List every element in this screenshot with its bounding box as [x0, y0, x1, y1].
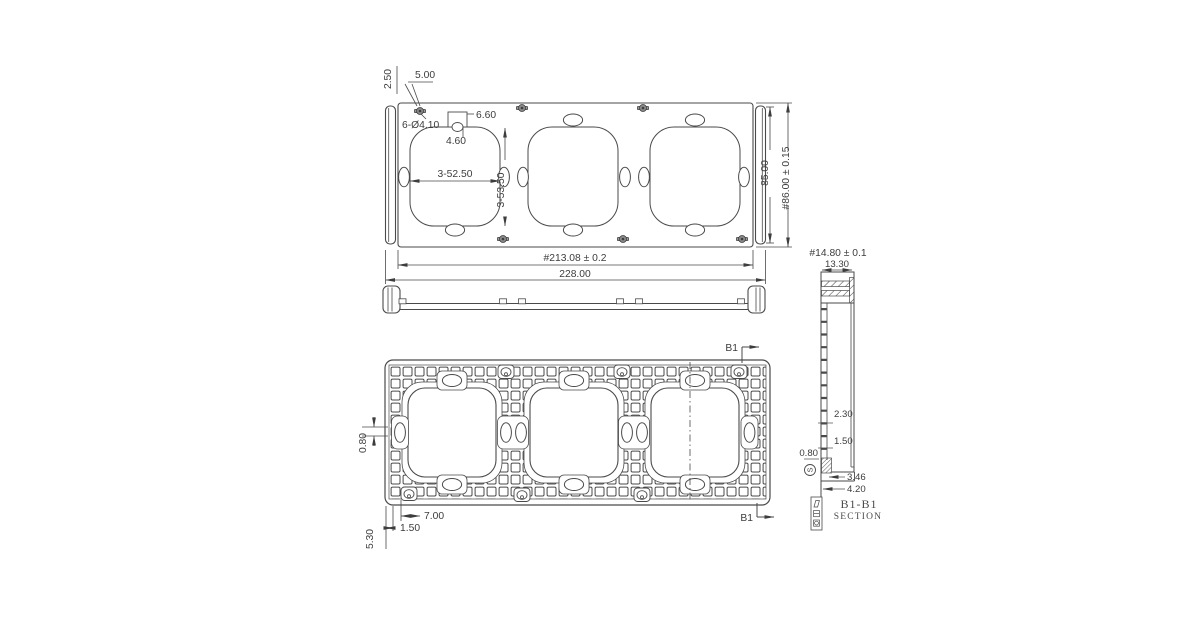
- edge-left-cap: [383, 286, 400, 313]
- dim-opening-height: 3-53.50: [496, 172, 507, 207]
- section-view: #14.80 ± 0.1 13.30 2.30 1.50 0.80 3.46 4…: [799, 248, 882, 530]
- dim-cap-width: 13.30: [825, 259, 849, 270]
- dim-cap-height: 85.00: [760, 160, 771, 186]
- dim-base-a: 3.46: [847, 472, 866, 483]
- datum-letter: S: [806, 467, 815, 472]
- screw-boss: [401, 487, 417, 501]
- dim-overall-depth: #14.80 ± 0.1: [809, 248, 866, 259]
- screw-boss: [634, 488, 650, 502]
- cut-rib-hatch: [822, 458, 832, 473]
- edge-tab: [500, 299, 507, 304]
- back-opening-1: [408, 388, 496, 477]
- dim-overall-width: 228.00: [559, 269, 591, 280]
- drawing-sheet: 6.60 4.60 2.50 5.00 6-Ø4.10 3-52.50 3-53…: [0, 0, 1200, 630]
- edge-tab: [738, 299, 745, 304]
- oval-hole: [685, 479, 704, 491]
- oval-hole: [563, 114, 582, 126]
- screw-boss: [498, 365, 514, 379]
- oval-hole: [445, 224, 464, 236]
- dim-edge-offset: 1.50: [400, 523, 420, 534]
- oval-hole: [442, 375, 461, 387]
- back-opening-2: [530, 388, 618, 477]
- edge-tab: [617, 299, 624, 304]
- top-view: 6.60 4.60 2.50 5.00 6-Ø4.10 3-52.50 3-53…: [383, 66, 792, 284]
- edge-right-cap: [748, 286, 765, 313]
- oval-hole: [395, 423, 406, 443]
- dim-opening-width: 3-52.50: [438, 169, 473, 180]
- section-label-bottom: B1: [740, 513, 753, 524]
- dim-rib-width: 0.80: [358, 433, 369, 453]
- left-end-cap: [386, 106, 396, 244]
- dim-corner-offset: 5.30: [365, 529, 376, 549]
- edge-tab: [399, 299, 406, 304]
- dim-wall-b: 1.50: [834, 436, 853, 447]
- dim-corner-offset-h: 5.00: [415, 70, 435, 81]
- oval-hole: [564, 375, 583, 387]
- section-subtitle: SECTION: [834, 512, 883, 522]
- dim-base-b: 4.20: [847, 484, 866, 495]
- oval-hole: [442, 479, 461, 491]
- dim-mount-holes: 6-Ø4.10: [402, 120, 439, 131]
- oval-hole: [518, 167, 529, 187]
- back-view: B1 B1 0.80 7.00 1.50 5.30: [358, 343, 774, 549]
- screw-boss: [731, 365, 747, 379]
- oval-hole: [739, 167, 750, 187]
- dim-corner-offset-v: 2.50: [383, 69, 394, 89]
- oval-hole: [622, 423, 633, 443]
- oval-hole: [620, 167, 631, 187]
- edge-view: [383, 286, 765, 313]
- oval-hole: [685, 375, 704, 387]
- section-label-top: B1: [725, 343, 738, 354]
- edge-tab: [636, 299, 643, 304]
- dim-overall-height: #86.00 ± 0.15: [781, 146, 792, 209]
- dim-tab-width: 6.60: [476, 110, 496, 121]
- dim-wall-a: 2.30: [834, 409, 853, 420]
- section-cap-block: [821, 272, 854, 303]
- oval-hole: [639, 167, 650, 187]
- opening-3: [650, 127, 740, 226]
- opening-2: [528, 127, 618, 226]
- dim-hole-span: #213.08 ± 0.2: [544, 253, 607, 264]
- screw-boss: [614, 365, 630, 379]
- edge-tab: [519, 299, 526, 304]
- oval-hole: [399, 167, 410, 187]
- oval-hole: [563, 224, 582, 236]
- oval-hole: [637, 423, 648, 443]
- dim-boss-offset: 7.00: [424, 511, 444, 522]
- oval-hole: [564, 479, 583, 491]
- section-title: B1-B1: [840, 497, 877, 511]
- dim-tab-depth: 4.60: [446, 136, 466, 147]
- screw-boss: [514, 488, 530, 502]
- oval-hole: [501, 423, 512, 443]
- dim-section-rib: 0.80: [799, 448, 818, 459]
- oval-hole: [516, 423, 527, 443]
- manufacturer-mark: [811, 497, 822, 530]
- cad-drawing: 6.60 4.60 2.50 5.00 6-Ø4.10 3-52.50 3-53…: [0, 0, 1200, 630]
- back-opening-3: [651, 388, 739, 477]
- oval-hole: [744, 423, 755, 443]
- oval-hole: [685, 114, 704, 126]
- oval-hole: [685, 224, 704, 236]
